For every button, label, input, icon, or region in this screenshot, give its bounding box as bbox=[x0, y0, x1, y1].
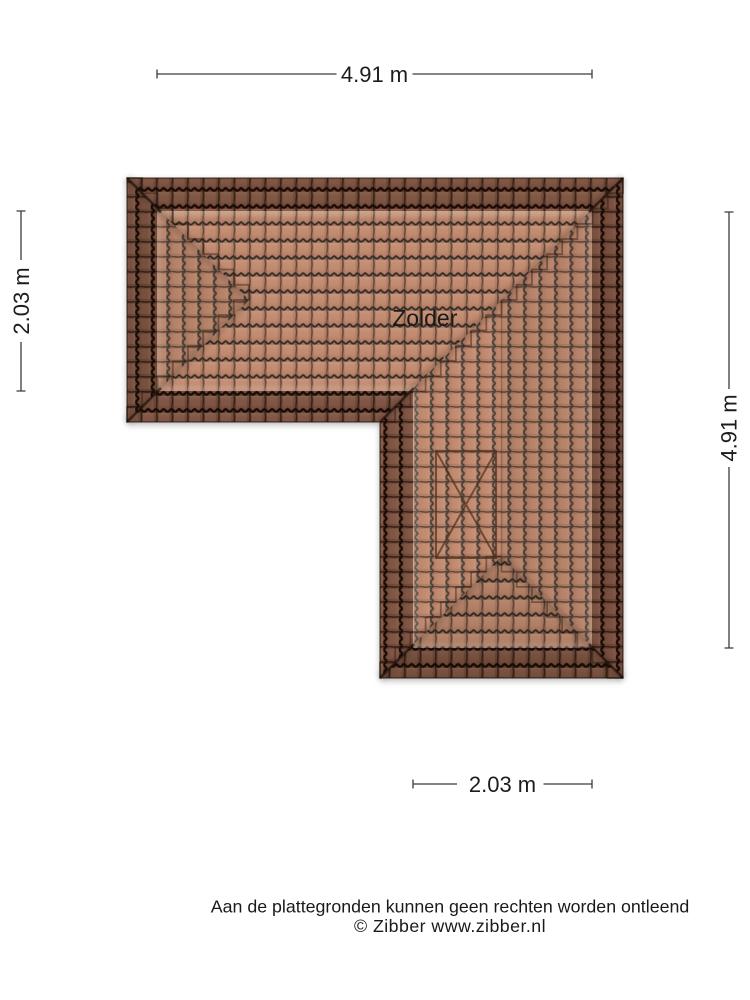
svg-text:Zolder: Zolder bbox=[392, 305, 458, 331]
svg-text:4.91 m: 4.91 m bbox=[717, 394, 742, 461]
svg-text:4.91 m: 4.91 m bbox=[341, 62, 408, 87]
svg-text:2.03 m: 2.03 m bbox=[9, 267, 34, 334]
svg-text:2.03 m: 2.03 m bbox=[469, 772, 536, 797]
svg-text:© Zibber www.zibber.nl: © Zibber www.zibber.nl bbox=[354, 916, 546, 936]
svg-text:Aan de plattegronden kunnen ge: Aan de plattegronden kunnen geen rechten… bbox=[211, 896, 690, 916]
